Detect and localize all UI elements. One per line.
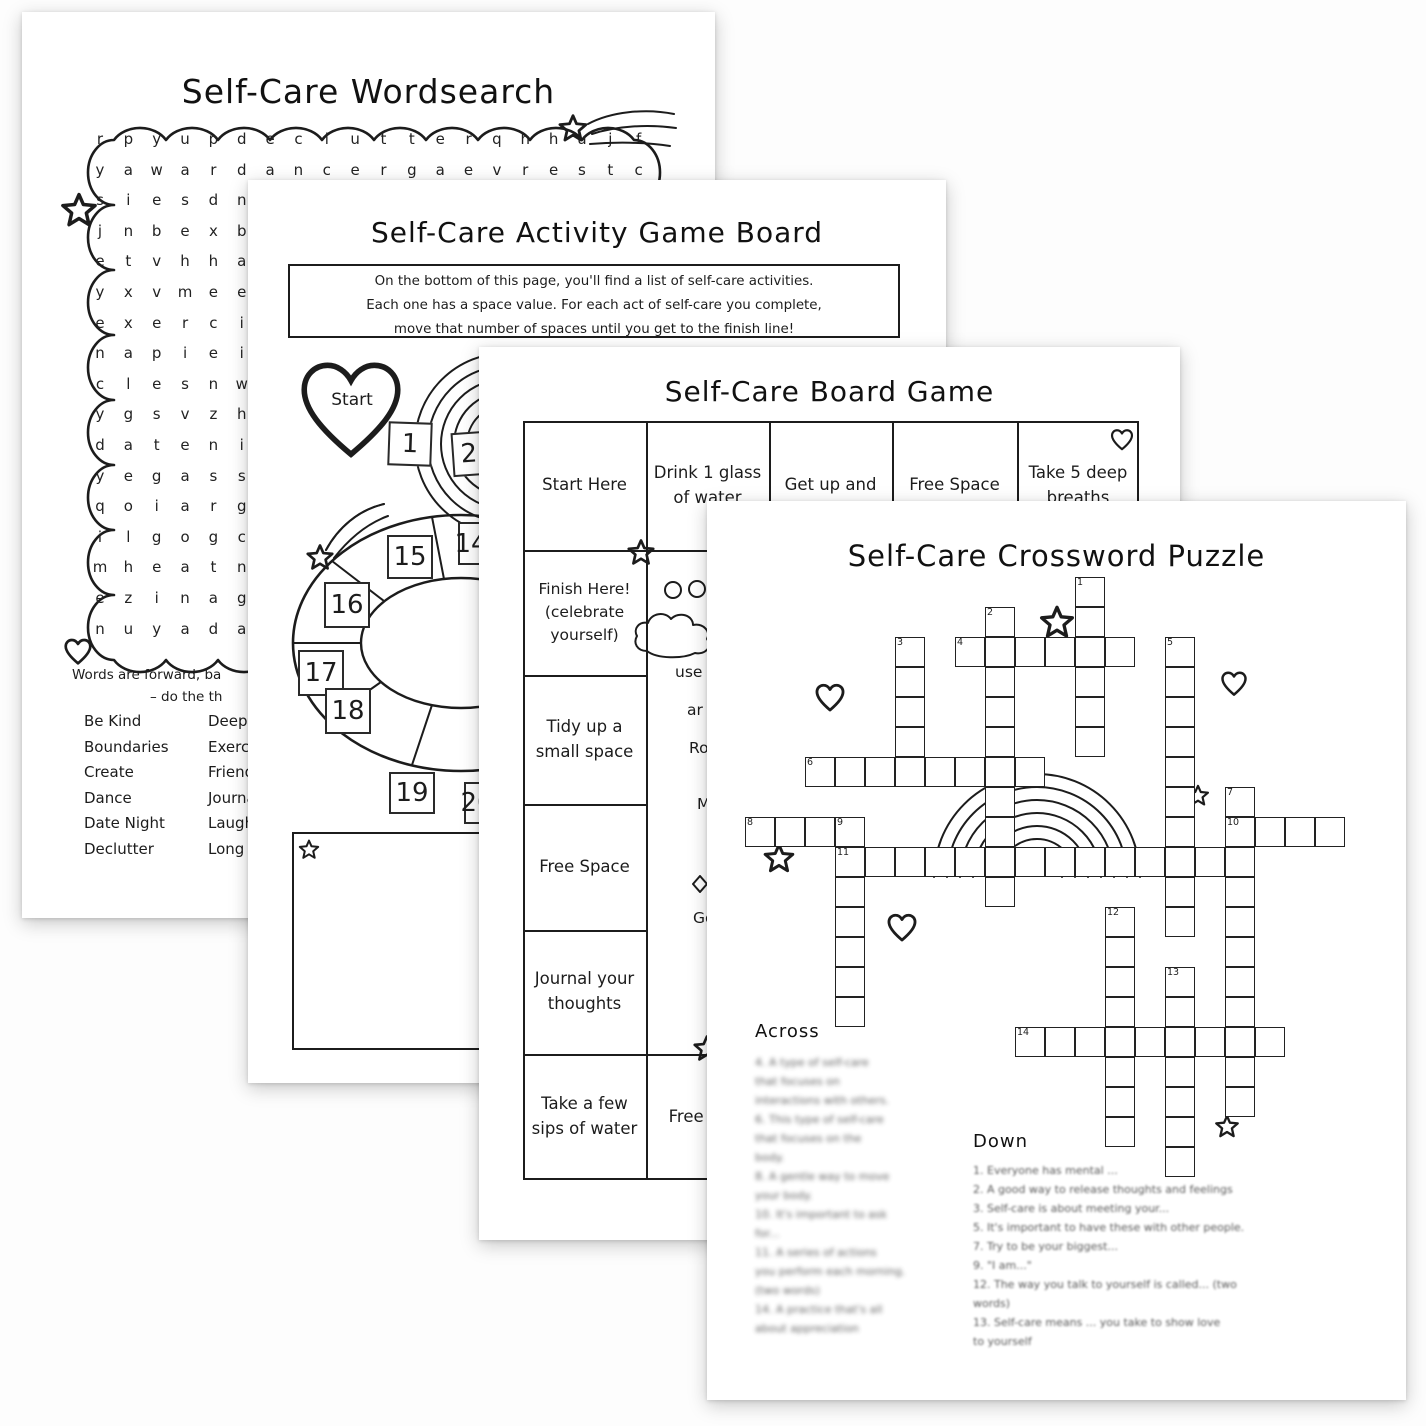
star-icon xyxy=(625,537,657,569)
wordsearch-letter: e xyxy=(88,589,112,607)
wordsearch-letter: e xyxy=(116,467,140,485)
wordsearch-letter: n xyxy=(286,161,310,179)
crossword-cell xyxy=(1285,817,1315,847)
crossword-number: 4 xyxy=(955,637,963,648)
instruction-line: On the bottom of this page, you'll find … xyxy=(290,270,898,294)
wordsearch-letter: p xyxy=(145,344,169,362)
wordsearch-letter: a xyxy=(201,589,225,607)
crossword-cell xyxy=(1045,847,1075,877)
crossword-cell xyxy=(1165,877,1195,907)
crossword-number: 11 xyxy=(835,847,849,858)
crossword-cell xyxy=(1165,1027,1195,1057)
wordsearch-letter: h xyxy=(116,558,140,576)
crossword-cell xyxy=(1075,1027,1105,1057)
wordsearch-letter: e xyxy=(173,222,197,240)
crossword-cell xyxy=(1165,667,1195,697)
crossword-cell xyxy=(955,757,985,787)
crossword-cell xyxy=(865,847,895,877)
wordsearch-letter: l xyxy=(116,375,140,393)
wordsearch-letter: c xyxy=(286,130,310,148)
clue-line: 2. A good way to release thoughts and fe… xyxy=(973,1180,1403,1199)
wordsearch-letter: a xyxy=(173,467,197,485)
crossword-cell xyxy=(895,847,925,877)
wordsearch-letter: v xyxy=(145,283,169,301)
wordsearch-letter: u xyxy=(343,130,367,148)
activity-board-title: Self-Care Activity Game Board xyxy=(248,216,946,249)
crossword-cell xyxy=(895,757,925,787)
wordsearch-letter: e xyxy=(428,130,452,148)
wordsearch-letter: a xyxy=(173,497,197,515)
crossword-cell xyxy=(1165,817,1195,847)
crossword-cell xyxy=(1255,1027,1285,1057)
board-cell-sips-water: Take a few sips of water xyxy=(523,1054,646,1180)
wordsearch-letter: y xyxy=(88,467,112,485)
crossword-cell xyxy=(895,667,925,697)
board-game-title: Self-Care Board Game xyxy=(479,375,1180,408)
wordsearch-letter: h xyxy=(173,252,197,270)
wordsearch-letter: a xyxy=(173,161,197,179)
wordsearch-letter: y xyxy=(145,620,169,638)
instruction-line: move that number of spaces until you get… xyxy=(290,318,898,342)
crossword-cell xyxy=(865,757,895,787)
wordsearch-letter: d xyxy=(201,191,225,209)
wordsearch-letter: t xyxy=(201,558,225,576)
crossword-number: 6 xyxy=(805,757,813,768)
wordsearch-letter: z xyxy=(116,589,140,607)
crossword-cell xyxy=(1015,757,1045,787)
crossword-cell xyxy=(1315,817,1345,847)
crossword-number: 10 xyxy=(1225,817,1239,828)
wordsearch-letter: d xyxy=(230,161,254,179)
wordsearch-letter: d xyxy=(230,130,254,148)
crossword-title: Self-Care Crossword Puzzle xyxy=(707,539,1406,573)
crossword-cell xyxy=(1135,847,1165,877)
crossword-cell xyxy=(1225,877,1255,907)
doodle-loops xyxy=(663,579,707,601)
crossword-cell xyxy=(985,787,1015,817)
wordsearch-letter: h xyxy=(201,252,225,270)
crossword-cell xyxy=(1165,907,1195,937)
crossword-cell xyxy=(805,817,835,847)
wordsearch-letter: x xyxy=(201,222,225,240)
wordsearch-letter: e xyxy=(145,375,169,393)
clue-line: body. xyxy=(755,1148,975,1167)
wordsearch-letter: e xyxy=(173,436,197,454)
wordsearch-letter: a xyxy=(428,161,452,179)
crossword-cell xyxy=(1225,847,1255,877)
wordsearch-list-word: Be Kind xyxy=(84,712,141,730)
cloud-icon xyxy=(629,603,719,663)
wordsearch-letter: y xyxy=(88,405,112,423)
crossword-cell xyxy=(985,847,1015,877)
crossword-cell xyxy=(1165,787,1195,817)
wordsearch-letter: e xyxy=(145,191,169,209)
crossword-cell xyxy=(1225,937,1255,967)
wordsearch-letter: a xyxy=(173,620,197,638)
shooting-star-icon xyxy=(550,104,680,164)
wordsearch-letter: t xyxy=(116,252,140,270)
crossword-cell xyxy=(835,757,865,787)
wordsearch-letter: d xyxy=(88,436,112,454)
wordsearch-letter: b xyxy=(145,222,169,240)
heart-icon xyxy=(885,911,919,945)
crossword-number: 1 xyxy=(1075,577,1083,588)
crossword-cell xyxy=(985,667,1015,697)
wordsearch-letter: e xyxy=(457,161,481,179)
wordsearch-letter: g xyxy=(201,528,225,546)
crossword-cell xyxy=(925,757,955,787)
clue-line: that focuses on xyxy=(755,1072,975,1091)
board-cell-journal: Journal your thoughts xyxy=(523,930,646,1054)
crossword-number: 7 xyxy=(1225,787,1233,798)
wordsearch-letter: s xyxy=(173,191,197,209)
instruction-line: Each one has a space value. For each act… xyxy=(290,294,898,318)
wordsearch-letter: n xyxy=(116,222,140,240)
wordsearch-letter: s xyxy=(201,467,225,485)
clue-line: about appreciation xyxy=(755,1319,975,1338)
clue-line: 8. A gentle way to move xyxy=(755,1167,975,1186)
wordsearch-letter: t xyxy=(372,130,396,148)
crossword-cell xyxy=(1045,637,1075,667)
crossword-number: 3 xyxy=(895,637,903,648)
wordsearch-letter: c xyxy=(201,314,225,332)
crossword-cell xyxy=(1105,967,1135,997)
text-fragment: use xyxy=(675,663,702,681)
crossword-cell xyxy=(985,727,1015,757)
wordsearch-letter: e xyxy=(343,161,367,179)
clue-line: that focuses on the xyxy=(755,1129,975,1148)
crossword-cell xyxy=(1135,1027,1165,1057)
wordsearch-letter: m xyxy=(173,283,197,301)
wordsearch-letter: r xyxy=(201,497,225,515)
clue-line: your body. xyxy=(755,1186,975,1205)
crossword-cell xyxy=(1225,1087,1255,1117)
wordsearch-letter: r xyxy=(457,130,481,148)
crossword-number: 8 xyxy=(745,817,753,828)
clue-line: 14. A practice that's all xyxy=(755,1300,975,1319)
wordsearch-letter: t xyxy=(400,130,424,148)
board-cell-tidy-up: Tidy up a small space xyxy=(523,675,646,804)
clue-line: 9. "I am..." xyxy=(973,1256,1403,1275)
crossword-cell xyxy=(985,757,1015,787)
wordsearch-letter: e xyxy=(201,344,225,362)
text-fragment: Ro xyxy=(689,739,709,757)
wordsearch-letter: i xyxy=(145,589,169,607)
crossword-cell xyxy=(1195,1027,1225,1057)
crossword-cell xyxy=(985,817,1015,847)
crossword-cell xyxy=(1225,907,1255,937)
crossword-cell xyxy=(1165,1057,1195,1087)
crossword-cell xyxy=(1015,637,1045,667)
crossword-cell xyxy=(1165,757,1195,787)
clue-line: interactions with others. xyxy=(755,1091,975,1110)
crossword-cell xyxy=(835,937,865,967)
crossword-cell xyxy=(1075,607,1105,637)
clue-line: 7. Try to be your biggest... xyxy=(973,1237,1403,1256)
wordsearch-letter: m xyxy=(88,558,112,576)
wordsearch-letter: z xyxy=(201,405,225,423)
crossword-cell xyxy=(1105,637,1135,667)
clue-line: words) xyxy=(973,1294,1403,1313)
wordsearch-letter: a xyxy=(173,558,197,576)
board-cell-free-space-2: Free Space xyxy=(523,804,646,930)
clue-line: 4. A type of self-care xyxy=(755,1053,975,1072)
crossword-cell xyxy=(835,907,865,937)
wordsearch-letter: x xyxy=(116,283,140,301)
crossword-cell xyxy=(1165,697,1195,727)
shooting-star-icon xyxy=(296,498,392,578)
wordsearch-letter: i xyxy=(145,497,169,515)
clue-line: 5. It's important to have these with oth… xyxy=(973,1218,1403,1237)
clue-line: for... xyxy=(755,1224,975,1243)
wordsearch-letter: l xyxy=(315,130,339,148)
ring-square-18: 18 xyxy=(325,688,371,734)
crossword-cell xyxy=(1015,847,1045,877)
wordsearch-list-word: Date Night xyxy=(84,814,165,832)
wordsearch-letter: y xyxy=(145,130,169,148)
crossword-cell xyxy=(1105,1057,1135,1087)
wordsearch-letter: u xyxy=(116,620,140,638)
crossword-cell xyxy=(1225,997,1255,1027)
wordsearch-letter: l xyxy=(116,528,140,546)
clue-line: 3. Self-care is about meeting your... xyxy=(973,1199,1403,1218)
heart-icon xyxy=(813,681,847,715)
wordsearch-letter: r xyxy=(173,314,197,332)
crossword-cell xyxy=(895,697,925,727)
crossword-number: 12 xyxy=(1105,907,1119,918)
crossword-cell xyxy=(1105,1027,1135,1057)
wordsearch-list-word: Create xyxy=(84,763,134,781)
wordsearch-letter: r xyxy=(513,161,537,179)
heart-icon xyxy=(1219,669,1249,699)
wordsearch-letter: e xyxy=(258,130,282,148)
wordsearch-letter: c xyxy=(88,375,112,393)
clue-line: to yourself xyxy=(973,1332,1403,1351)
crossword-cell xyxy=(1225,1027,1255,1057)
wordsearch-letter: q xyxy=(88,497,112,515)
wordsearch-letter: e xyxy=(145,558,169,576)
wordsearch-letter: u xyxy=(173,130,197,148)
wordsearch-letter: y xyxy=(88,283,112,301)
crossword-cell xyxy=(775,817,805,847)
wordsearch-letter: e xyxy=(145,314,169,332)
wordsearch-note-line1: Words are forward, ba xyxy=(72,667,221,683)
across-clues: 4. A type of self-carethat focuses onint… xyxy=(755,1053,975,1338)
wordsearch-letter: a xyxy=(258,161,282,179)
clue-line: 10. It's important to ask xyxy=(755,1205,975,1224)
crossword-cell xyxy=(835,877,865,907)
crossword-cell xyxy=(1165,1117,1195,1147)
star-icon xyxy=(58,190,100,232)
worksheet-collage: Self-Care Wordsearch rpyupdeclutterqhhuj… xyxy=(0,0,1426,1426)
heart-icon xyxy=(1109,427,1135,453)
wordsearch-note-line2: – do the th xyxy=(150,689,222,705)
wordsearch-letter: a xyxy=(116,161,140,179)
wordsearch-letter: n xyxy=(201,375,225,393)
crossword-cell xyxy=(925,847,955,877)
wordsearch-letter: e xyxy=(88,314,112,332)
wordsearch-letter: e xyxy=(201,283,225,301)
crossword-cell xyxy=(1225,1057,1255,1087)
crossword-cell xyxy=(1105,1117,1135,1147)
wordsearch-letter: e xyxy=(88,252,112,270)
star-icon xyxy=(1213,1113,1241,1141)
crossword-number: 13 xyxy=(1165,967,1179,978)
crossword-cell xyxy=(895,727,925,757)
clue-line: you perform each morning. xyxy=(755,1262,975,1281)
wordsearch-list-word: Boundaries xyxy=(84,738,169,756)
crossword-cell xyxy=(1165,847,1195,877)
wordsearch-letter: q xyxy=(485,130,509,148)
crossword-cell xyxy=(955,847,985,877)
star-icon xyxy=(297,838,321,862)
wordsearch-letter: x xyxy=(116,314,140,332)
wordsearch-letter: n xyxy=(201,436,225,454)
wordsearch-letter: r xyxy=(372,161,396,179)
crossword-number: 2 xyxy=(985,607,993,618)
page-crossword: Self-Care Crossword Puzzle 1234567891011… xyxy=(707,501,1406,1400)
clue-line: 12. The way you talk to yourself is call… xyxy=(973,1275,1403,1294)
crossword-cell xyxy=(835,997,865,1027)
crossword-cell xyxy=(835,967,865,997)
activity-instructions-box: On the bottom of this page, you'll find … xyxy=(288,264,900,338)
crossword-cell xyxy=(1105,937,1135,967)
wordsearch-list-word: Declutter xyxy=(84,840,154,858)
crossword-cell xyxy=(1075,637,1105,667)
wordsearch-letter: p xyxy=(116,130,140,148)
wordsearch-letter: n xyxy=(88,620,112,638)
start-label: Start xyxy=(310,390,394,410)
wordsearch-letter: t xyxy=(145,436,169,454)
wordsearch-letter: p xyxy=(201,130,225,148)
crossword-cell xyxy=(1075,667,1105,697)
clue-line: 13. Self-care means ... you take to show… xyxy=(973,1313,1403,1332)
board-cell-start-here: Start Here xyxy=(523,421,646,550)
clue-line: 11. A series of actions xyxy=(755,1243,975,1262)
wordsearch-letter: s xyxy=(173,375,197,393)
wordsearch-letter: r xyxy=(88,130,112,148)
crossword-number: 5 xyxy=(1165,637,1173,648)
crossword-cell xyxy=(1075,697,1105,727)
wordsearch-letter: o xyxy=(116,497,140,515)
crossword-cell xyxy=(1165,1087,1195,1117)
clue-line: 1. Everyone has mental ... xyxy=(973,1161,1403,1180)
wordsearch-letter: s xyxy=(145,405,169,423)
crossword-cell xyxy=(1075,847,1105,877)
wordsearch-letter: w xyxy=(145,161,169,179)
wordsearch-letter: o xyxy=(173,528,197,546)
wordsearch-letter: v xyxy=(485,161,509,179)
down-clues: 1. Everyone has mental ...2. A good way … xyxy=(973,1161,1403,1351)
wordsearch-letter: a xyxy=(116,344,140,362)
down-heading: Down xyxy=(973,1131,1028,1152)
clue-line: (two words) xyxy=(755,1281,975,1300)
crossword-cell xyxy=(1105,997,1135,1027)
crossword-number: 9 xyxy=(835,817,843,828)
crossword-cell xyxy=(1105,847,1135,877)
wordsearch-letter: h xyxy=(513,130,537,148)
path-square-1: 1 xyxy=(387,421,433,467)
wordsearch-letter: d xyxy=(201,620,225,638)
clue-line: 6. This type of self-care xyxy=(755,1110,975,1129)
crossword-number: 14 xyxy=(1015,1027,1029,1038)
wordsearch-list-word: Dance xyxy=(84,789,132,807)
ring-square-19: 19 xyxy=(389,772,435,814)
heart-icon xyxy=(62,636,94,668)
text-fragment: ar xyxy=(687,701,703,719)
crossword-cell xyxy=(985,877,1015,907)
crossword-cell xyxy=(1105,1087,1135,1117)
crossword-cell xyxy=(1255,817,1285,847)
wordsearch-letter: n xyxy=(173,589,197,607)
crossword-cell xyxy=(1195,847,1225,877)
crossword-cell xyxy=(1075,727,1105,757)
wordsearch-letter: g xyxy=(145,528,169,546)
crossword-cell xyxy=(985,697,1015,727)
wordsearch-letter: c xyxy=(315,161,339,179)
crossword-cell xyxy=(985,637,1015,667)
crossword-cell xyxy=(1165,727,1195,757)
wordsearch-letter: g xyxy=(116,405,140,423)
wordsearch-letter: g xyxy=(400,161,424,179)
across-heading: Across xyxy=(755,1021,820,1042)
wordsearch-letter: i xyxy=(173,344,197,362)
wordsearch-letter: r xyxy=(201,161,225,179)
wordsearch-letter: i xyxy=(88,528,112,546)
wordsearch-letter: g xyxy=(145,467,169,485)
wordsearch-letter: v xyxy=(173,405,197,423)
wordsearch-letter: y xyxy=(88,161,112,179)
crossword-cell xyxy=(1225,967,1255,997)
wordsearch-letter: i xyxy=(116,191,140,209)
ring-square-16: 16 xyxy=(324,582,370,628)
crossword-cell xyxy=(1045,1027,1075,1057)
wordsearch-letter: a xyxy=(116,436,140,454)
ring-square-15: 15 xyxy=(387,535,433,579)
wordsearch-letter: v xyxy=(145,252,169,270)
crossword-cell xyxy=(1165,997,1195,1027)
wordsearch-letter: n xyxy=(88,344,112,362)
